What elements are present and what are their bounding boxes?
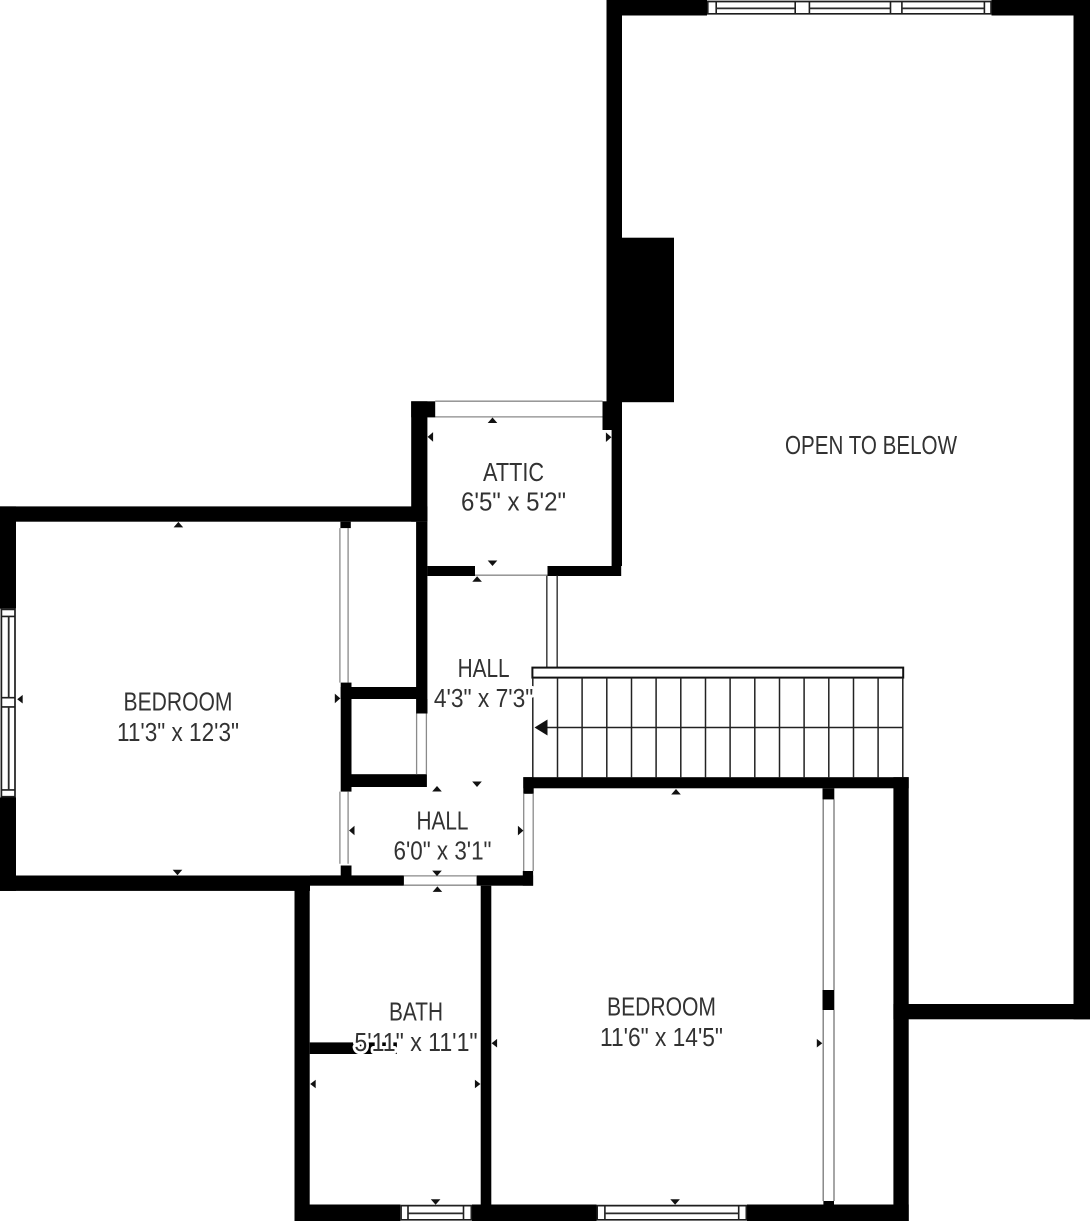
svg-text:ATTIC: ATTIC	[483, 459, 544, 487]
svg-text:OPEN TO BELOW: OPEN TO BELOW	[785, 432, 957, 460]
svg-text:11'3" x 12'3": 11'3" x 12'3"	[117, 719, 239, 747]
svg-text:11'6" x 14'5": 11'6" x 14'5"	[600, 1024, 723, 1052]
svg-text:HALL: HALL	[458, 655, 510, 683]
svg-text:4'3" x 7'3": 4'3" x 7'3"	[434, 685, 534, 713]
svg-text:6'5" x 5'2": 6'5" x 5'2"	[461, 489, 566, 517]
svg-text:BATH: BATH	[389, 998, 443, 1026]
svg-text:BEDROOM: BEDROOM	[124, 689, 233, 717]
svg-text:BEDROOM: BEDROOM	[607, 993, 716, 1021]
svg-text:HALL: HALL	[417, 808, 469, 836]
svg-text:6'0" x 3'1": 6'0" x 3'1"	[394, 838, 492, 866]
svg-text:5'11" x 11'1": 5'11" x 11'1"	[354, 1029, 477, 1057]
